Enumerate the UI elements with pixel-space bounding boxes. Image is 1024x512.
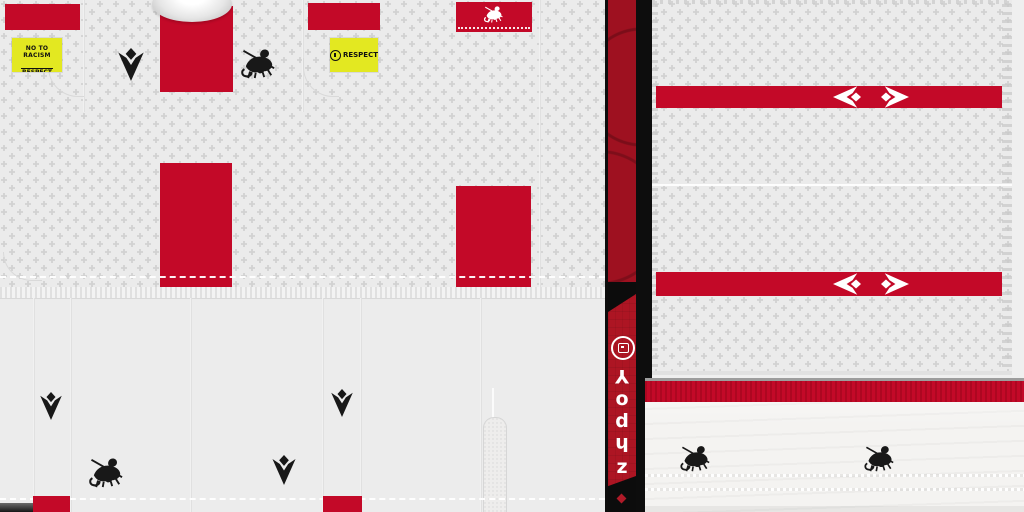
respect-badge-icon	[330, 50, 341, 61]
watermark-letter: z	[608, 457, 636, 477]
banner-black-wedge	[608, 294, 636, 312]
banner-maker-monogram	[618, 343, 629, 353]
banner-maker-logo-icon	[611, 336, 635, 360]
sock-stitch-row	[645, 474, 1024, 477]
stitched-edge-right	[1002, 0, 1012, 375]
back-red-stripe-block	[456, 186, 531, 287]
macron-logo-icon	[331, 389, 353, 417]
georgia-crest-icon	[862, 444, 898, 472]
sleeve-red-band-top	[656, 86, 1002, 108]
sock-red-cuff-band	[645, 381, 1024, 402]
macron-logo-white-icon	[881, 271, 909, 297]
shorts-seam	[480, 298, 482, 512]
watermark-banner-top	[608, 0, 638, 290]
panel-bottom-edge	[652, 371, 1012, 375]
stitched-edge-left	[652, 0, 658, 375]
jersey-seam	[539, 0, 541, 290]
shoulder-red-block-left	[5, 4, 80, 30]
banner-black-wedge	[608, 282, 636, 294]
macron-logo-icon	[40, 392, 62, 420]
front-red-stripe-block	[160, 163, 232, 287]
no-to-racism-text: NO TO RACISM	[12, 45, 62, 59]
no-to-racism-badge: NO TO RACISM RESPECT	[12, 38, 62, 72]
black-gap	[636, 378, 645, 512]
respect-label: RESPECT	[343, 51, 378, 59]
kit-texture-sheet: NO TO RACISM RESPECT RESPECT	[0, 0, 1024, 512]
shoulder-red-block-right	[308, 3, 380, 30]
macron-logo-white-icon	[833, 271, 861, 297]
respect-text: RESPECT	[21, 68, 53, 72]
watermark-letter: h	[608, 434, 636, 454]
shorts-seam	[33, 298, 35, 512]
georgia-crest-icon	[240, 47, 278, 79]
shadow-corner	[0, 503, 33, 512]
black-gap	[636, 0, 652, 378]
macron-logo-white-icon	[833, 84, 861, 110]
sock-bottom-shade	[645, 506, 1024, 512]
macron-logo-icon	[272, 455, 296, 485]
hem-rib-band	[0, 287, 605, 298]
sleeve-divider-seam	[652, 184, 1012, 186]
shorts-seam	[360, 298, 362, 512]
respect-badge: RESPECT	[330, 38, 378, 72]
watermark-letter: Y	[608, 366, 636, 386]
stitch-line	[458, 27, 530, 29]
shorts-hem-stitch	[0, 498, 605, 500]
shorts-seam	[190, 298, 192, 512]
shorts-hem-red-mid	[323, 496, 362, 512]
sock-stitch-row	[645, 488, 1024, 491]
georgia-crest-icon	[88, 456, 126, 488]
stitched-edge-top	[652, 0, 1012, 4]
shorts-seam	[322, 298, 324, 512]
sock-panel	[645, 378, 1024, 512]
watermark-letter: o	[608, 389, 636, 409]
georgia-crest-icon	[678, 444, 714, 472]
watermark-letter: d	[608, 411, 636, 431]
panel-divider	[0, 298, 605, 299]
georgia-crest-white-icon	[483, 5, 505, 23]
shorts-panel	[0, 298, 605, 512]
hem-stitch-line	[0, 276, 605, 278]
macron-logo-white-icon	[881, 84, 909, 110]
sleeve-patch-red	[456, 2, 532, 32]
jersey-body-panel: NO TO RACISM RESPECT RESPECT	[0, 0, 605, 298]
shorts-seam	[70, 298, 72, 512]
drawcord-line	[492, 388, 494, 418]
watermark-banner: Y o d h z	[608, 290, 638, 512]
shorts-hem-red-left	[33, 496, 70, 512]
fabric-plus-pattern	[652, 0, 1012, 375]
jersey-seam	[302, 0, 304, 112]
sleeve-red-band-bottom	[656, 272, 1002, 296]
background-gutter	[1012, 0, 1024, 378]
macron-logo-icon	[118, 48, 144, 81]
sleeve-panel	[652, 0, 1012, 375]
